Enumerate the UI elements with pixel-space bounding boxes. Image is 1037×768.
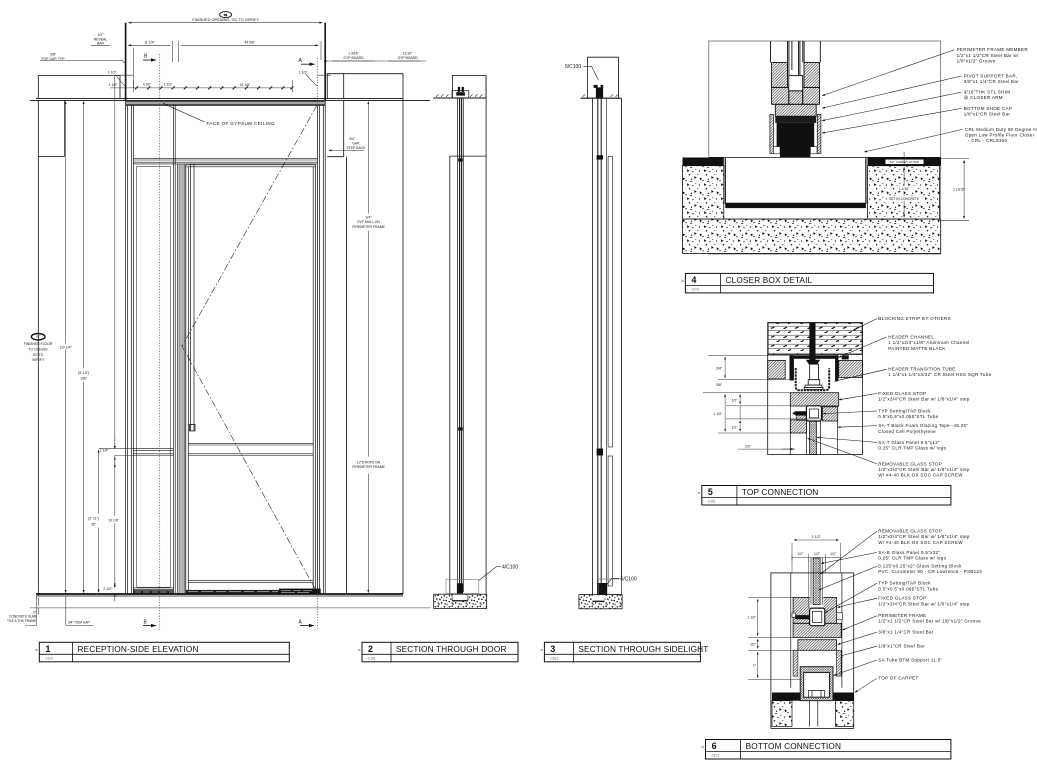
svg-text:5: 5 — [708, 487, 713, 497]
svg-text:0.09": 0.09" — [143, 83, 152, 87]
svg-text:6: 6 — [712, 741, 717, 751]
svg-text:BOTTOM CONNECTION: BOTTOM CONNECTION — [746, 741, 841, 751]
svg-text:3/8": 3/8" — [716, 383, 723, 387]
svg-text:12"STRIPS ON: 12"STRIPS ON — [357, 460, 381, 464]
svg-text:SECTION THROUGH SIDELIGHT: SECTION THROUGH SIDELIGHT — [578, 644, 708, 654]
svg-text:C101: C101 — [550, 656, 558, 660]
svg-text:1 1/4"x1 1/4"x3/32" CR Steel H: 1 1/4"x1 1/4"x3/32" CR Steel HSS SQR Tub… — [888, 372, 991, 377]
svg-text:1/2"x1 1/2"CR Steel Bar w/: 1/2"x1 1/2"CR Steel Bar w/ — [957, 53, 1019, 58]
svg-text:BOTTOM SHOE CAP: BOTTOM SHOE CAP — [964, 106, 1012, 111]
svg-text:2: 2 — [368, 644, 373, 654]
svg-text:1 1/2": 1 1/2" — [812, 535, 822, 539]
svg-text:44 5/8": 44 5/8" — [244, 41, 255, 45]
svg-text:GAP,: GAP, — [352, 142, 360, 146]
svg-text:DVT MULL ON: DVT MULL ON — [357, 220, 380, 224]
svg-text:SET IN CONCRETE: SET IN CONCRETE — [889, 197, 920, 201]
svg-text:4/C100: 4/C100 — [502, 565, 518, 571]
svg-text:1/2": 1/2" — [732, 425, 739, 429]
svg-text:0.25" CLR TMP Glass w/ logo: 0.25" CLR TMP Glass w/ logo — [878, 446, 946, 451]
svg-text:1/2"x3/4"CR Steel Bar w/ 1/8"x: 1/2"x3/4"CR Steel Bar w/ 1/8"x1/4" step — [878, 534, 970, 539]
svg-text:35": 35" — [91, 522, 97, 526]
svg-text:1/2": 1/2" — [830, 552, 837, 556]
svg-text:3/4" ITEM GAP: 3/4" ITEM GAP — [68, 621, 90, 625]
svg-text:SA-T Glass Panel 9.5"x12": SA-T Glass Panel 9.5"x12" — [878, 440, 940, 445]
svg-text:Open Low Profile Floor Closer: Open Low Profile Floor Closer — [965, 133, 1035, 138]
svg-text:RECEPTION-SIDE ELEVATION: RECEPTION-SIDE ELEVATION — [78, 644, 199, 654]
svg-text:1/2"x1 1/2"CR Steel Bar w/ 1/8: 1/2"x1 1/2"CR Steel Bar w/ 1/8"x1/2" Gro… — [878, 619, 981, 624]
svg-text:PERIMETER FRAME: PERIMETER FRAME — [352, 225, 385, 229]
svg-text:1/2": 1/2" — [750, 643, 757, 647]
svg-text:FACE OF GYPSUM CEILING: FACE OF GYPSUM CEILING — [207, 121, 276, 126]
svg-text:6/C100: 6/C100 — [621, 576, 637, 582]
svg-text:106": 106" — [80, 377, 88, 381]
svg-text:C101: C101 — [368, 656, 376, 660]
svg-text:1 13/16": 1 13/16" — [953, 188, 966, 192]
svg-text:GC TO: GC TO — [33, 353, 44, 357]
svg-text:PERIMETER FRAME MEMBER: PERIMETER FRAME MEMBER — [957, 47, 1029, 52]
svg-text:BAR: BAR — [97, 42, 105, 46]
svg-text:BLOCKING STRIP BY OTHERS: BLOCKING STRIP BY OTHERS — [878, 316, 951, 321]
svg-text:PAINTED MATTE BLACK: PAINTED MATTE BLACK — [888, 346, 945, 351]
svg-text:PIVOT SUPPORT BAR,: PIVOT SUPPORT BAR, — [964, 74, 1018, 79]
svg-text:3/8"x1 1/4"CR Steel Bar: 3/8"x1 1/4"CR Steel Bar — [878, 630, 934, 635]
svg-text:0.5"x0.5"x0.055"STL Tube: 0.5"x0.5"x0.055"STL Tube — [878, 414, 938, 419]
svg-text:3: 3 — [550, 644, 555, 654]
svg-text:CRL Medium Duty 90 Degree Hold: CRL Medium Duty 90 Degree Hold — [965, 127, 1037, 132]
svg-text:3/4": 3/4" — [366, 216, 373, 220]
svg-text:1 1/2": 1 1/2" — [747, 616, 757, 620]
svg-text:TOP CONNECTION: TOP CONNECTION — [742, 487, 819, 497]
svg-text:@ CLOSER ARM: @ CLOSER ARM — [964, 95, 1003, 100]
svg-text:1 1/2": 1 1/2" — [108, 70, 118, 74]
svg-text:1 1/4": 1 1/4" — [100, 449, 110, 453]
svg-text:TOP GAP, TYP: TOP GAP, TYP — [42, 57, 66, 61]
svg-text:W/ #4-40 BLK OX SOC CAP SCREW: W/ #4-40 BLK OX SOC CAP SCREW — [878, 473, 963, 478]
svg-text:C101: C101 — [46, 656, 54, 660]
svg-text:0.25" CLR TMP Glass w/ logo: 0.25" CLR TMP Glass w/ logo — [878, 555, 946, 560]
svg-text:1/8"x1"CR Steel Bar: 1/8"x1"CR Steel Bar — [964, 112, 1011, 117]
svg-text:3/16"THK STL SHIM: 3/16"THK STL SHIM — [964, 90, 1011, 95]
svg-text:Closed Cell Polyethylene: Closed Cell Polyethylene — [878, 429, 936, 434]
svg-text:FINISHED FLOOR: FINISHED FLOOR — [24, 342, 53, 346]
svg-text:11/16": 11/16" — [403, 52, 413, 56]
svg-text:C101: C101 — [712, 754, 720, 758]
svg-text:SA Tube BTM Support 11.5": SA Tube BTM Support 11.5" — [878, 657, 942, 662]
svg-text:TYP Setting/TAP Block: TYP Setting/TAP Block — [878, 409, 931, 414]
svg-text:FINISHED OPENING, GC TO VERIFY: FINISHED OPENING, GC TO VERIFY — [192, 17, 259, 22]
svg-text:1/2": 1/2" — [814, 552, 821, 556]
svg-text:1/2": 1/2" — [797, 552, 804, 556]
svg-text:TILE & THK FRAME: TILE & THK FRAME — [7, 619, 36, 623]
svg-text:1 1/4": 1 1/4" — [713, 412, 723, 416]
svg-text:1 1/16": 1 1/16" — [899, 187, 910, 191]
svg-text:PERIMETER FRAME: PERIMETER FRAME — [352, 465, 385, 469]
svg-text:1 1/4": 1 1/4" — [109, 83, 119, 87]
svg-text:3/4": 3/4" — [349, 137, 356, 141]
svg-text:SECTION THROUGH DOOR: SECTION THROUGH DOOR — [396, 644, 507, 654]
svg-text:FIXED GLASS STOP: FIXED GLASS STOP — [878, 391, 926, 396]
svg-text:PERIMETER FRAME: PERIMETER FRAME — [878, 613, 926, 618]
svg-text:1/2": 1/2" — [36, 334, 41, 338]
svg-text:1/2": 1/2" — [98, 33, 105, 37]
svg-text:FIXED GLASS STOP: FIXED GLASS STOP — [878, 596, 926, 601]
svg-text:4: 4 — [692, 275, 697, 285]
svg-text:32 1/8": 32 1/8" — [240, 83, 251, 87]
svg-text:HEADER CHANNEL: HEADER CHANNEL — [888, 335, 934, 340]
svg-text:[2'-11"]: [2'-11"] — [88, 516, 98, 520]
svg-text:1/2": 1/2" — [732, 399, 739, 403]
svg-text:1/2" CARPET W/ PAD: 1/2" CARPET W/ PAD — [890, 160, 920, 164]
svg-text:0.5"x0.5"x0.065"STL Tube: 0.5"x0.5"x0.065"STL Tube — [878, 586, 938, 591]
svg-text:TO CEILING: TO CEILING — [28, 347, 48, 351]
svg-text:3/8"x1 1/4"CR Steel Bar: 3/8"x1 1/4"CR Steel Bar — [964, 79, 1020, 84]
svg-text:REMOVABLE GLASS STOP: REMOVABLE GLASS STOP — [878, 529, 942, 534]
svg-text:GYP BOARD: GYP BOARD — [397, 56, 418, 60]
svg-text:0.125"x0.25"x2" Glass Setting: 0.125"x0.25"x2" Glass Setting Block — [878, 564, 962, 569]
svg-text:HEADER TRANSITION TUBE: HEADER TRANSITION TUBE — [888, 367, 955, 372]
svg-text:SA-T Black Foam Glazing Tape--: SA-T Black Foam Glazing Tape--45.25" — [878, 423, 968, 428]
svg-text:1 1/2": 1 1/2" — [299, 70, 309, 74]
svg-text:1 3/16": 1 3/16" — [348, 52, 359, 56]
svg-text:GYP BOARD: GYP BOARD — [343, 56, 364, 60]
svg-text:PVC, Curometer 90 - CR Lawrenc: PVC, Curometer 90 - CR Lawrence - PSB123 — [878, 569, 982, 574]
svg-text:1/8"x1"CR Steel Bar: 1/8"x1"CR Steel Bar — [878, 644, 925, 649]
svg-text:1: 1 — [46, 644, 51, 654]
svg-text:1/8"x1/2" Groove: 1/8"x1/2" Groove — [957, 58, 996, 63]
svg-text:10 1/8": 10 1/8" — [108, 518, 119, 522]
svg-text:C101: C101 — [708, 500, 716, 504]
svg-text:2 1/2": 2 1/2" — [103, 587, 113, 591]
svg-text:VERIFY: VERIFY — [32, 358, 45, 362]
svg-text:119 1/4": 119 1/4" — [59, 345, 72, 349]
svg-text:1/2"x3/4"CR Steel Bar w/ 1/8"x: 1/2"x3/4"CR Steel Bar w/ 1/8"x1/4" step — [878, 601, 970, 606]
svg-text:TOP OF CARPET: TOP OF CARPET — [878, 676, 918, 681]
svg-text:1 1/2"x3/4"x1/8" Aluminum Chan: 1 1/2"x3/4"x1/8" Aluminum Channel — [888, 340, 969, 345]
svg-text:1 1/2": 1 1/2" — [164, 83, 174, 87]
svg-text:- CRL - CRL8360: - CRL - CRL8360 — [968, 138, 1008, 143]
svg-text:REMOVABLE GLASS STOP: REMOVABLE GLASS STOP — [878, 461, 942, 466]
svg-text:[9'-10"]: [9'-10"] — [78, 371, 89, 375]
svg-text:1/2"x3/4"CR Steel Bar w/ 1/8"x: 1/2"x3/4"CR Steel Bar w/ 1/8"x1/4" step — [878, 467, 970, 472]
svg-text:3/4": 3/4" — [716, 367, 723, 371]
svg-text:1/2": 1/2" — [745, 444, 752, 448]
svg-text:1/2"x3/4"CR Steel Bar w/ 1/8"x: 1/2"x3/4"CR Steel Bar w/ 1/8"x1/4" step — [878, 397, 970, 402]
svg-text:SA-B Glass Panel 9.5"x32": SA-B Glass Panel 9.5"x32" — [878, 550, 940, 555]
svg-text:W/ #4-40 BLK OX SOC CAP SCREW: W/ #4-40 BLK OX SOC CAP SCREW — [878, 540, 963, 545]
svg-text:TYP Setting/TAP Block: TYP Setting/TAP Block — [878, 581, 931, 586]
svg-text:STEP BACK: STEP BACK — [347, 146, 367, 150]
svg-text:CLOSER BOX DETAIL: CLOSER BOX DETAIL — [726, 275, 813, 285]
svg-text:11 1/4": 11 1/4" — [144, 41, 155, 45]
svg-text:5/C100: 5/C100 — [565, 64, 581, 70]
svg-text:C101: C101 — [692, 287, 700, 291]
